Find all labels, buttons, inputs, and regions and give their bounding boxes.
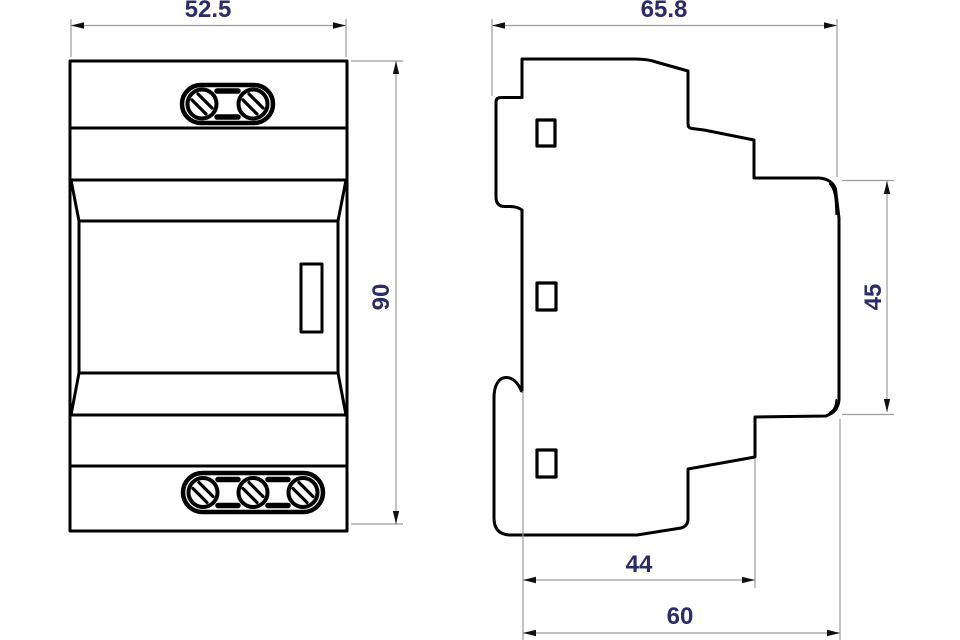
screw-icon bbox=[239, 90, 268, 119]
dimension-depth-body: 44 bbox=[523, 391, 755, 640]
front-body-outline bbox=[70, 61, 347, 531]
dimension-front-height: 90 bbox=[351, 61, 403, 524]
side-face-inner-edge bbox=[830, 184, 836, 413]
arrow-right-icon bbox=[827, 630, 840, 636]
dim-label-depth-body: 44 bbox=[626, 551, 653, 578]
dim-label-depth-total: 60 bbox=[667, 603, 694, 630]
dimension-front-width: 52.5 bbox=[71, 0, 346, 57]
arrow-left-icon bbox=[523, 630, 536, 636]
screw-icon bbox=[188, 90, 217, 119]
arrow-right-icon bbox=[742, 577, 755, 583]
front-bevel-top-left bbox=[71, 180, 79, 221]
dimension-side-width: 65.8 bbox=[492, 0, 837, 177]
arrow-down-icon bbox=[393, 511, 399, 524]
side-square-hole-top bbox=[537, 120, 555, 146]
side-view bbox=[494, 59, 839, 535]
technical-drawing: 52.5 90 65.8 bbox=[0, 0, 960, 640]
arrow-right-icon bbox=[824, 22, 837, 28]
dimension-depth-total: 60 bbox=[523, 419, 840, 640]
dim-label-front-width: 52.5 bbox=[185, 0, 232, 23]
screw-icon bbox=[239, 478, 268, 507]
dim-label-face-height: 45 bbox=[860, 284, 887, 311]
arrow-down-icon bbox=[884, 399, 890, 412]
dimension-face-height: 45 bbox=[842, 181, 894, 415]
side-square-hole-middle bbox=[537, 283, 556, 310]
screw-icon bbox=[289, 478, 318, 507]
front-view bbox=[70, 61, 347, 531]
front-label-window bbox=[301, 264, 322, 332]
arrow-left-icon bbox=[71, 22, 84, 28]
side-profile-outline bbox=[494, 59, 839, 535]
side-square-hole-bottom bbox=[537, 450, 556, 477]
dim-label-front-height: 90 bbox=[368, 284, 395, 311]
terminal-top bbox=[182, 85, 273, 123]
arrow-left-icon bbox=[523, 577, 536, 583]
terminal-bottom bbox=[183, 473, 323, 512]
front-bevel-bottom-left bbox=[71, 373, 79, 415]
drawing-canvas: 52.5 90 65.8 bbox=[0, 0, 960, 640]
arrow-up-icon bbox=[393, 61, 399, 74]
dim-label-side-width: 65.8 bbox=[641, 0, 688, 23]
arrow-up-icon bbox=[884, 181, 890, 194]
screw-icon bbox=[189, 478, 218, 507]
front-bevel-bottom-right bbox=[338, 373, 346, 415]
arrow-left-icon bbox=[492, 22, 505, 28]
front-bevel-top-right bbox=[338, 180, 346, 221]
arrow-right-icon bbox=[333, 22, 346, 28]
